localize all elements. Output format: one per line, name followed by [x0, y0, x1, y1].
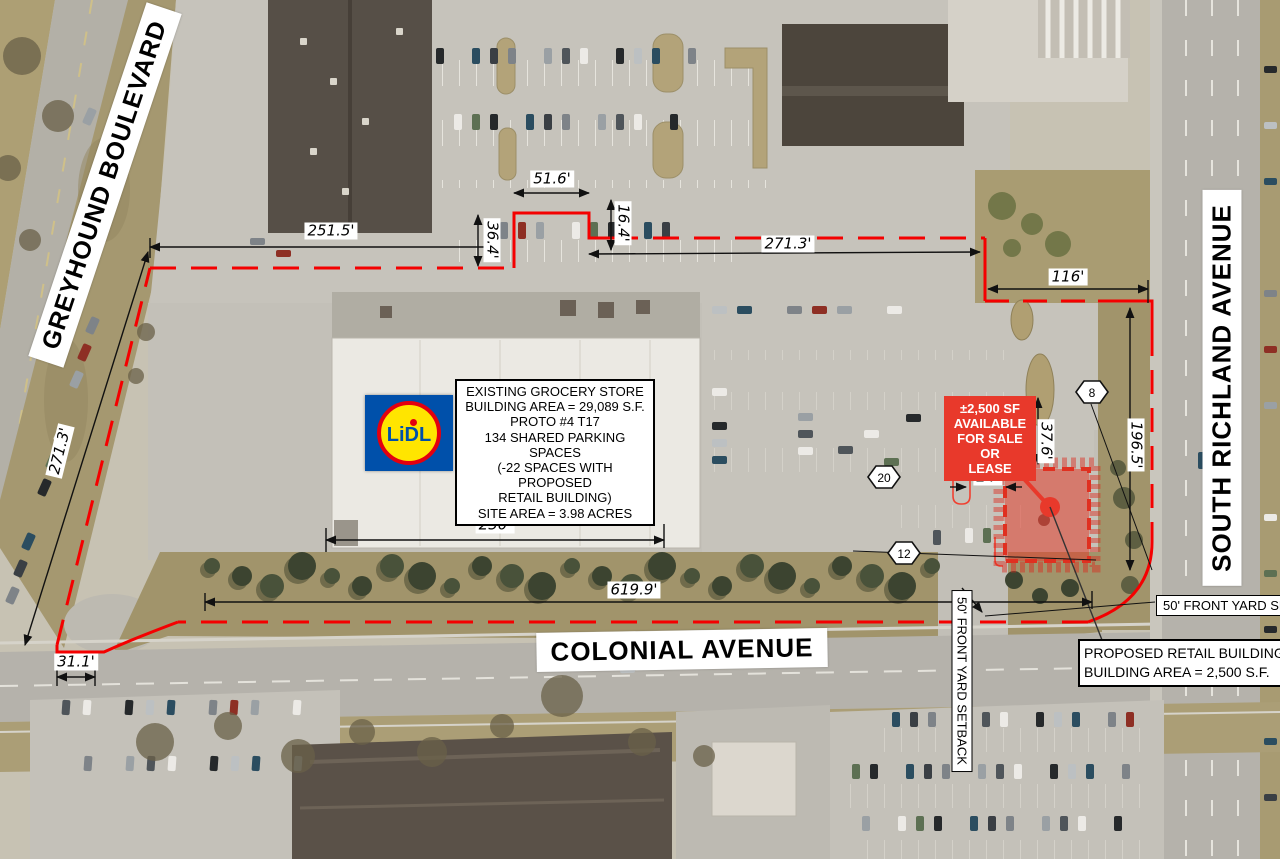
aerial-site-plan: 8 20 12 GREYHOUND BOULEVARD COLONIAL AVE…: [0, 0, 1280, 859]
existing-store-infobox: EXISTING GROCERY STORE BUILDING AREA = 2…: [455, 379, 655, 526]
badge-8-count: 8: [1089, 386, 1096, 400]
proposed-line: BUILDING AREA = 2,500 S.F.: [1084, 663, 1280, 682]
setback-label-south: 50' FRONT YARD SETBACK: [952, 590, 973, 772]
dim-boundary-top-west: 251.5': [304, 223, 357, 240]
proposed-line: PROPOSED RETAIL BUILDING: [1084, 644, 1280, 663]
dim-boundary-sw: 31.1': [54, 654, 98, 671]
existing-store-line: EXISTING GROCERY STORE: [461, 384, 649, 399]
available-line: AVAILABLE: [946, 416, 1034, 431]
existing-store-line: RETAIL BUILDING): [461, 490, 649, 505]
dim-boundary-east: 196.5': [1128, 418, 1145, 471]
existing-store-line: BUILDING AREA = 29,089 S.F.: [461, 399, 649, 414]
existing-store-line: 134 SHARED PARKING SPACES: [461, 430, 649, 460]
existing-store-line: PROTO #4 T17: [461, 414, 649, 429]
street-label-richland: SOUTH RICHLAND AVENUE: [1203, 190, 1242, 586]
badge-12-count: 12: [897, 547, 911, 561]
badge-20-count: 20: [877, 471, 891, 485]
dim-frontage: 619.9': [607, 582, 660, 599]
available-line: FOR SALE OR: [946, 431, 1034, 461]
lidl-i-dot: [410, 419, 417, 426]
proposed-building-infobox: PROPOSED RETAIL BUILDING BUILDING AREA =…: [1078, 639, 1280, 687]
street-label-colonial: COLONIAL AVENUE: [536, 628, 828, 672]
setback-label-east: 50' FRONT YARD SETBACK: [1156, 595, 1280, 616]
dim-drive-gap: 37.6': [1038, 419, 1055, 463]
available-line: ±2,500 SF: [946, 401, 1034, 416]
available-line: LEASE: [946, 461, 1034, 476]
dim-boundary-ne: 116': [1049, 269, 1088, 286]
lidl-wordmark: LiDL: [381, 424, 437, 447]
dim-stall-bay: 51.6': [530, 171, 574, 188]
lidl-logo: LiDL: [365, 395, 453, 471]
existing-store-line: (-22 SPACES WITH PROPOSED: [461, 460, 649, 490]
available-for-sale-callout: ±2,500 SF AVAILABLE FOR SALE OR LEASE: [944, 396, 1036, 481]
lidl-logo-circle: LiDL: [377, 401, 441, 465]
dim-boundary-top-east: 271.3': [761, 236, 814, 253]
dim-jog-east: 16.4': [615, 201, 632, 245]
existing-store-line: SITE AREA = 3.98 ACRES: [461, 506, 649, 521]
dim-jog-west: 36.4': [484, 218, 501, 262]
